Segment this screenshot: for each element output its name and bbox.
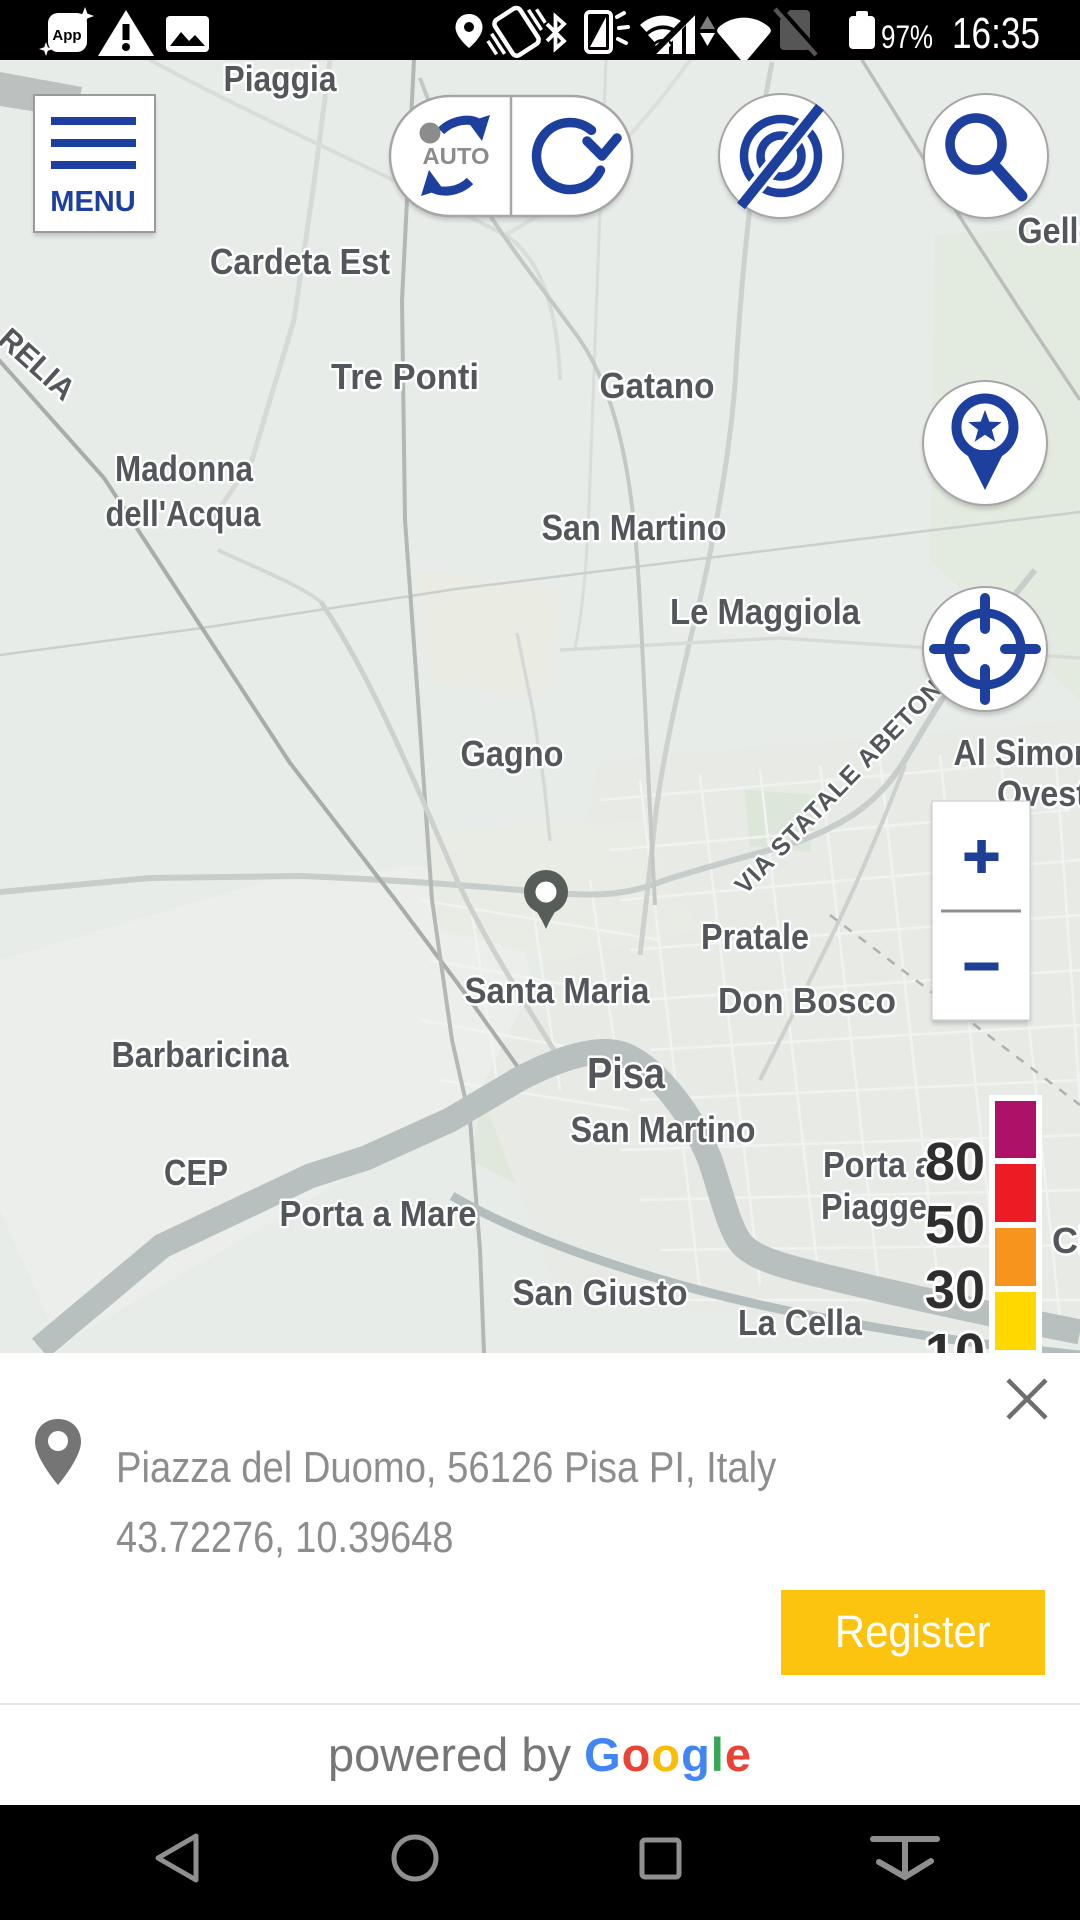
svg-text:80: 80: [925, 1132, 985, 1192]
svg-text:16:35: 16:35: [952, 9, 1040, 58]
svg-text:97%: 97%: [881, 19, 933, 55]
svg-text:AUTO: AUTO: [423, 143, 490, 169]
svg-text:App: App: [52, 27, 81, 44]
svg-text:50: 50: [925, 1195, 985, 1255]
svg-text:10: 10: [925, 1323, 985, 1353]
svg-text:30: 30: [925, 1260, 985, 1320]
svg-text:MENU: MENU: [50, 186, 135, 218]
